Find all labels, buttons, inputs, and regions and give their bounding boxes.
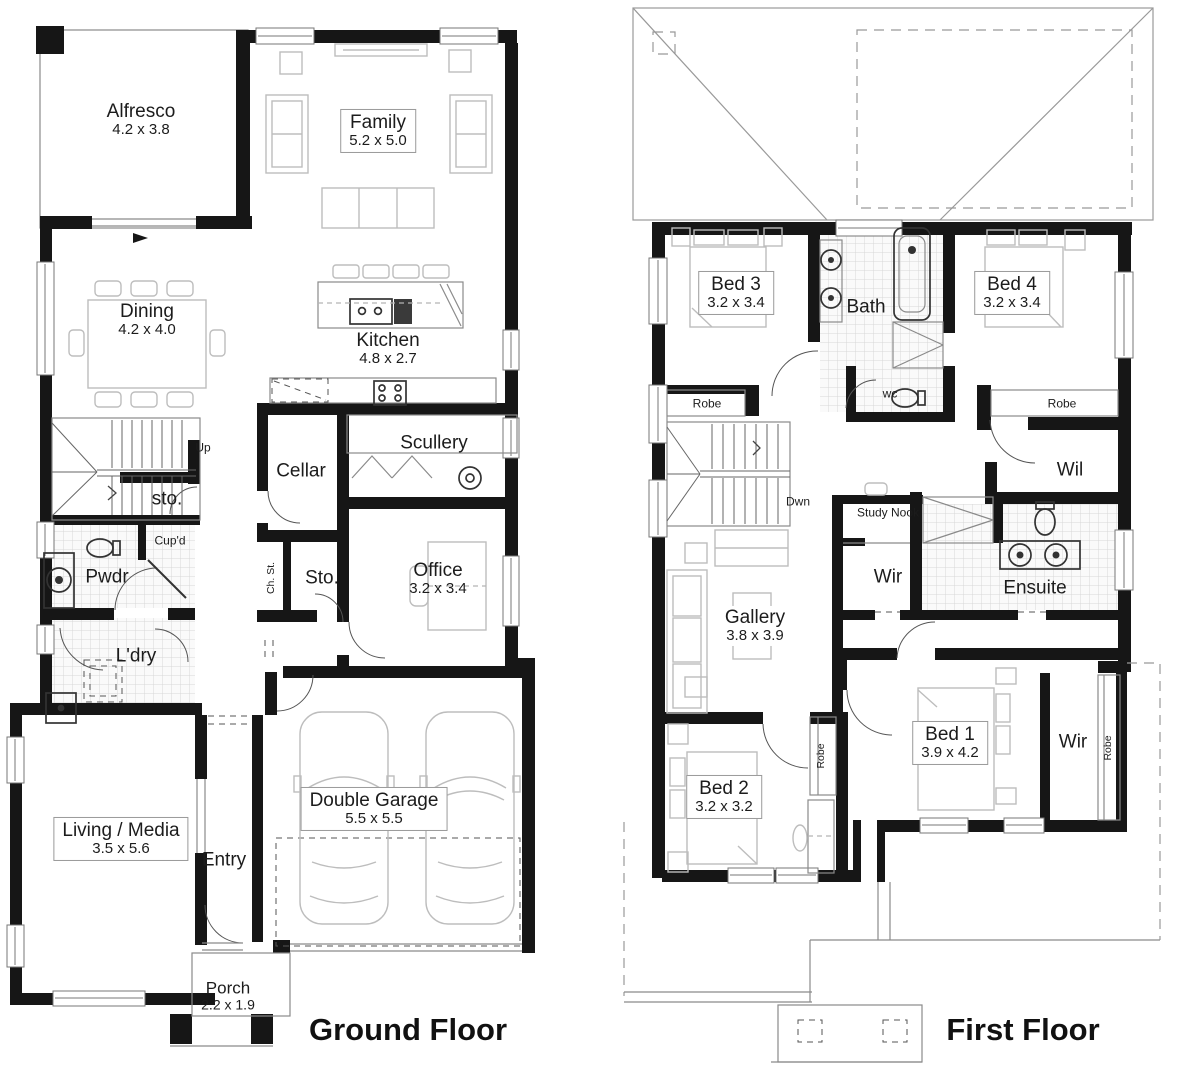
room-label-study-nook: Study Nook [857, 506, 919, 519]
robe-label-bed4: Robe [1048, 397, 1077, 410]
room-label-alfresco: Alfresco 4.2 x 3.8 [107, 101, 176, 139]
room-label-gallery: Gallery 3.8 x 3.9 [719, 606, 791, 646]
room-label-ensuite: Ensuite [1003, 577, 1066, 598]
first-stairs [667, 422, 790, 526]
room-label-double-garage: Double Garage 5.5 x 5.5 [301, 787, 448, 831]
room-label-kitchen: Kitchen 4.8 x 2.7 [356, 330, 419, 368]
room-label-bed1: Bed 1 3.9 x 4.2 [912, 721, 988, 765]
kitchen-island [318, 265, 463, 328]
room-label-laundry: L'dry [116, 645, 157, 666]
room-label-store-under-stairs: sto. [152, 488, 183, 509]
room-label-entry: Entry [202, 849, 246, 870]
room-label-wir-hall: Wir [874, 566, 902, 587]
room-label-scullery: Scullery [400, 432, 468, 453]
room-label-bed2: Bed 2 3.2 x 3.2 [686, 775, 762, 819]
room-label-family: Family 5.2 x 5.0 [340, 109, 416, 153]
room-label-cellar: Cellar [276, 460, 326, 481]
floor-plan-page: Alfresco 4.2 x 3.8 Family 5.2 x 5.0 Dini… [0, 0, 1200, 1087]
robe-label-bed2: Robe [816, 743, 828, 768]
room-label-wc: wc [883, 387, 898, 400]
ground-floor-plan [7, 26, 535, 1046]
dining-table [69, 281, 225, 407]
room-label-bath: Bath [846, 296, 885, 317]
room-label-dining: Dining 4.2 x 4.0 [118, 301, 176, 339]
room-label-bed3: Bed 3 3.2 x 3.4 [698, 271, 774, 315]
room-label-chute-store: Ch. St. [266, 562, 278, 594]
room-label-cupboard: Cup'd [155, 534, 186, 547]
room-label-office: Office 3.2 x 3.4 [409, 560, 467, 598]
robe-label-wir: Robe [1103, 735, 1115, 760]
first-floor-title: First Floor [946, 1012, 1099, 1048]
room-label-wir-bed1: Wir [1059, 731, 1087, 752]
room-label-store: Sto. [305, 567, 339, 588]
roof-outline [633, 8, 1153, 220]
robe-label-bed3: Robe [693, 397, 722, 410]
stair-up-label: Up [195, 441, 210, 454]
room-label-living-media: Living / Media 3.5 x 5.6 [53, 817, 188, 861]
first-floor-plan [624, 8, 1160, 1062]
ground-furniture [44, 44, 520, 924]
room-label-bed4: Bed 4 3.2 x 3.4 [974, 271, 1050, 315]
room-label-walk-in-linen: Wil [1057, 459, 1083, 480]
room-label-powder: Pwdr [85, 566, 128, 587]
ground-floor-title: Ground Floor [309, 1012, 507, 1048]
room-label-porch: Porch 2.2 x 1.9 [201, 979, 255, 1014]
stair-down-label: Dwn [786, 495, 810, 508]
